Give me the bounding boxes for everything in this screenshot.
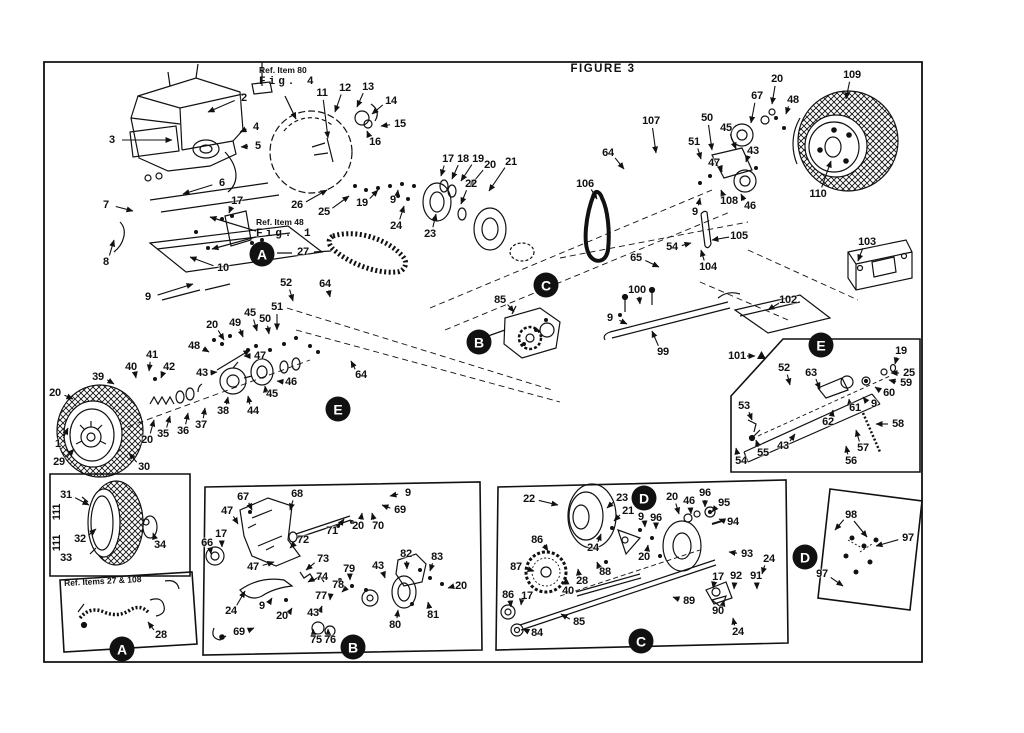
part-label: 36 bbox=[177, 425, 189, 437]
part-label: 95 bbox=[718, 497, 730, 509]
part-label: 63 bbox=[805, 367, 817, 379]
part-label: 20 bbox=[484, 159, 496, 171]
part-label: 50 bbox=[259, 313, 271, 325]
part-label: 72 bbox=[297, 534, 309, 546]
part-label: 28 bbox=[155, 629, 167, 641]
part-label: 82 bbox=[400, 548, 412, 560]
idler-cluster-drawing bbox=[701, 109, 775, 248]
part-label: 103 bbox=[858, 236, 876, 248]
callout-a: A bbox=[250, 242, 275, 267]
part-label: 1 bbox=[55, 438, 61, 450]
part-label: 9 bbox=[145, 291, 151, 303]
part-label: 69 bbox=[233, 626, 245, 638]
part-label: 94 bbox=[727, 516, 739, 528]
part-label: 10 bbox=[217, 262, 229, 274]
part-label: 46 bbox=[744, 200, 756, 212]
part-label: 6 bbox=[219, 177, 225, 189]
part-label: 101 bbox=[728, 350, 746, 362]
part-label: 56 bbox=[845, 455, 857, 467]
part-label: 51 bbox=[688, 136, 700, 148]
part-label: 19 bbox=[356, 197, 368, 209]
part-label: 47 bbox=[708, 157, 720, 169]
part-label: 9 bbox=[638, 511, 644, 523]
part-label: 65 bbox=[630, 252, 642, 264]
part-label: 14 bbox=[385, 95, 397, 107]
callout-e: E bbox=[326, 397, 351, 422]
part-label: 80 bbox=[389, 619, 401, 631]
part-label: 24 bbox=[732, 626, 744, 638]
part-label: 21 bbox=[505, 156, 517, 168]
part-label: 20 bbox=[638, 551, 650, 563]
right-wheel-drawing bbox=[793, 91, 898, 191]
support-bar-drawing bbox=[604, 288, 730, 341]
part-label: 43 bbox=[747, 145, 759, 157]
part-label: 92 bbox=[730, 570, 742, 582]
parts-diagram-page: FIGURE 3 Ref. Item 80 Fig. 4 Ref. Item 4… bbox=[0, 0, 1024, 733]
part-label: 91 bbox=[750, 570, 762, 582]
part-label: 20 bbox=[771, 73, 783, 85]
part-label: 105 bbox=[730, 230, 748, 242]
part-label: 55 bbox=[757, 447, 769, 459]
part-label: 102 bbox=[779, 294, 797, 306]
part-label: 20 bbox=[141, 434, 153, 446]
part-label: 96 bbox=[699, 487, 711, 499]
part-label: 17 bbox=[521, 590, 533, 602]
part-label: 40 bbox=[125, 361, 137, 373]
part-label: 13 bbox=[362, 81, 374, 93]
part-label: 38 bbox=[217, 405, 229, 417]
diagram-artwork bbox=[0, 0, 1024, 733]
part-label: 24 bbox=[763, 553, 775, 565]
part-label: 23 bbox=[424, 228, 436, 240]
part-label: 9 bbox=[871, 398, 877, 410]
part-label: 90 bbox=[712, 605, 724, 617]
part-label: 20 bbox=[352, 520, 364, 532]
part-label: 44 bbox=[247, 405, 259, 417]
part-label: 67 bbox=[237, 491, 249, 503]
part-label: 17 bbox=[231, 195, 243, 207]
ref-note-fig4-line2: Fig. 4 bbox=[259, 76, 317, 89]
part-label: 24 bbox=[225, 605, 237, 617]
part-label: 67 bbox=[751, 90, 763, 102]
part-label: 86 bbox=[502, 589, 514, 601]
part-label: 3 bbox=[109, 134, 115, 146]
transmission-drawing bbox=[488, 306, 560, 358]
part-label: 17 bbox=[215, 528, 227, 540]
part-label: 104 bbox=[699, 261, 717, 273]
part-label: 51 bbox=[271, 301, 283, 313]
part-label: 71 bbox=[326, 525, 338, 537]
ref-note-fig1-line2: Fig. 1 bbox=[256, 228, 314, 241]
part-label: 50 bbox=[701, 112, 713, 124]
part-label: 34 bbox=[154, 539, 166, 551]
part-label: 24 bbox=[587, 542, 599, 554]
part-label: 86 bbox=[531, 534, 543, 546]
part-label: 11 bbox=[316, 87, 327, 99]
part-label: 43 bbox=[777, 440, 789, 452]
part-label: 9 bbox=[692, 206, 698, 218]
part-label: 19 bbox=[895, 345, 907, 357]
part-label: 26 bbox=[291, 199, 303, 211]
part-label: 42 bbox=[163, 361, 175, 373]
part-label: 20 bbox=[666, 491, 678, 503]
part-label: 35 bbox=[157, 428, 169, 440]
callout-d: D bbox=[632, 486, 657, 511]
part-label: 111 bbox=[51, 504, 63, 521]
part-label: 2 bbox=[241, 92, 247, 104]
part-label: 9 bbox=[607, 312, 613, 324]
part-label: 77 bbox=[315, 590, 327, 602]
part-label: 57 bbox=[857, 442, 869, 454]
part-label: 93 bbox=[741, 548, 753, 560]
part-label: 97 bbox=[816, 568, 828, 580]
ref-note-fig4-line1: Ref. Item 80 bbox=[259, 66, 317, 76]
part-label: 74 bbox=[316, 571, 328, 583]
part-label: 75 bbox=[310, 634, 322, 646]
part-label: 64 bbox=[602, 147, 614, 159]
part-label: 47 bbox=[221, 505, 233, 517]
part-label: 64 bbox=[355, 369, 367, 381]
part-label: 111 bbox=[51, 535, 63, 552]
part-label: 20 bbox=[49, 387, 61, 399]
callout-a: A bbox=[110, 637, 135, 662]
part-label: 49 bbox=[229, 317, 241, 329]
part-label: 48 bbox=[188, 340, 200, 352]
part-label: 41 bbox=[146, 349, 158, 361]
part-label: 60 bbox=[883, 387, 895, 399]
part-label: 47 bbox=[247, 561, 259, 573]
part-label: 16 bbox=[369, 136, 381, 148]
part-label: 28 bbox=[576, 575, 588, 587]
part-label: 4 bbox=[253, 121, 259, 133]
part-label: 24 bbox=[390, 220, 402, 232]
part-label: 45 bbox=[266, 388, 278, 400]
part-label: 68 bbox=[291, 488, 303, 500]
part-label: 21 bbox=[622, 505, 634, 517]
part-label: 108 bbox=[720, 195, 738, 207]
part-label: 33 bbox=[60, 552, 72, 564]
figure-title: FIGURE 3 bbox=[570, 63, 635, 75]
part-label: 109 bbox=[843, 69, 861, 81]
ref-note-fig4: Ref. Item 80 Fig. 4 bbox=[259, 66, 317, 88]
part-label: 40 bbox=[562, 585, 574, 597]
part-label: 47 bbox=[254, 350, 266, 362]
part-label: 29 bbox=[53, 456, 65, 468]
part-label: 20 bbox=[206, 319, 218, 331]
part-label: 46 bbox=[285, 376, 297, 388]
part-label: 66 bbox=[201, 537, 213, 549]
part-label: 88 bbox=[599, 566, 611, 578]
part-label: 79 bbox=[343, 563, 355, 575]
part-label: 76 bbox=[324, 634, 336, 646]
part-label: 45 bbox=[244, 307, 256, 319]
callout-d: D bbox=[793, 545, 818, 570]
part-label: 64 bbox=[319, 278, 331, 290]
part-label: 73 bbox=[317, 553, 329, 565]
part-label: 84 bbox=[531, 627, 543, 639]
part-label: 27 bbox=[297, 246, 309, 258]
part-label: 100 bbox=[628, 284, 646, 296]
part-label: 106 bbox=[576, 178, 594, 190]
part-label: 59 bbox=[900, 377, 912, 389]
part-label: 5 bbox=[255, 140, 261, 152]
part-label: 78 bbox=[332, 579, 344, 591]
part-label: 43 bbox=[372, 560, 384, 572]
part-label: 20 bbox=[276, 610, 288, 622]
part-label: 32 bbox=[74, 533, 86, 545]
part-label: 54 bbox=[735, 455, 747, 467]
left-wheel-drawing bbox=[57, 385, 143, 477]
part-label: 12 bbox=[339, 82, 351, 94]
ref-note-fig1: Ref. Item 48 Fig. 1 bbox=[256, 218, 314, 240]
part-label: 48 bbox=[787, 94, 799, 106]
part-label: 22 bbox=[523, 493, 535, 505]
callout-b: B bbox=[467, 330, 492, 355]
part-label: 20 bbox=[455, 580, 467, 592]
part-label: 9 bbox=[405, 487, 411, 499]
part-label: 52 bbox=[778, 362, 790, 374]
drive-belt-drawing bbox=[586, 192, 609, 261]
part-label: 98 bbox=[845, 509, 857, 521]
part-label: 45 bbox=[720, 122, 732, 134]
part-label: 8 bbox=[103, 256, 109, 268]
part-label: 54 bbox=[666, 241, 678, 253]
part-label: 46 bbox=[683, 495, 695, 507]
ref-note-fig1-line1: Ref. Item 48 bbox=[256, 218, 314, 228]
part-label: 97 bbox=[902, 532, 914, 544]
part-label: 22 bbox=[465, 178, 477, 190]
part-label: 81 bbox=[427, 609, 439, 621]
part-label: 85 bbox=[573, 616, 585, 628]
part-label: 9 bbox=[259, 600, 265, 612]
callout-c: C bbox=[629, 629, 654, 654]
engine-drawing bbox=[130, 62, 272, 192]
callout-c: C bbox=[534, 273, 559, 298]
part-label: 25 bbox=[318, 206, 330, 218]
part-label: 99 bbox=[657, 346, 669, 358]
part-label: 43 bbox=[307, 607, 319, 619]
part-label: 18 bbox=[457, 153, 469, 165]
part-label: 52 bbox=[280, 277, 292, 289]
part-label: 17 bbox=[442, 153, 454, 165]
part-label: 89 bbox=[683, 595, 695, 607]
part-label: 17 bbox=[712, 571, 724, 583]
part-label: 96 bbox=[650, 512, 662, 524]
part-label: 83 bbox=[431, 551, 443, 563]
part-label: 62 bbox=[822, 416, 834, 428]
part-label: 53 bbox=[738, 400, 750, 412]
part-label: 70 bbox=[372, 520, 384, 532]
part-label: 61 bbox=[849, 402, 861, 414]
inset-d-box bbox=[818, 489, 922, 610]
part-label: 87 bbox=[510, 561, 522, 573]
static-leaders bbox=[210, 96, 867, 537]
part-label: 9 bbox=[390, 194, 396, 206]
part-label: 39 bbox=[92, 371, 104, 383]
part-label: 37 bbox=[195, 419, 207, 431]
part-label: 31 bbox=[60, 489, 72, 501]
figure-border-group bbox=[44, 62, 922, 662]
part-label: 107 bbox=[642, 115, 660, 127]
part-label: 43 bbox=[196, 367, 208, 379]
callout-e: E bbox=[809, 333, 834, 358]
part-label: 58 bbox=[892, 418, 904, 430]
part-label: 85 bbox=[494, 294, 506, 306]
part-label: 15 bbox=[394, 118, 406, 130]
part-label: 110 bbox=[809, 188, 826, 200]
part-label: 7 bbox=[103, 199, 109, 211]
part-label: 19 bbox=[472, 153, 484, 165]
part-label: 69 bbox=[394, 504, 406, 516]
drive-chain-drawing bbox=[329, 234, 405, 273]
part-label: 23 bbox=[616, 492, 628, 504]
part-label: 30 bbox=[138, 461, 150, 473]
callout-b: B bbox=[341, 635, 366, 660]
